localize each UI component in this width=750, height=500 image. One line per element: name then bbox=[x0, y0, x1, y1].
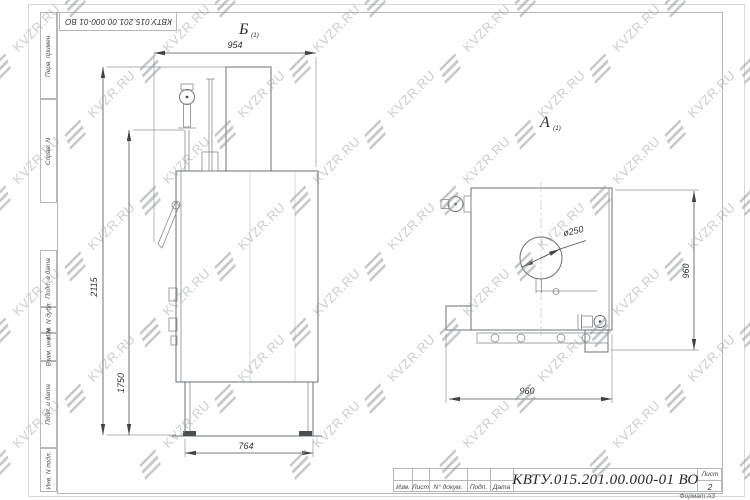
strip-label: Справ. N bbox=[45, 137, 52, 164]
strip-label: Инв. N подл. bbox=[45, 451, 52, 489]
watermark-logo-icon bbox=[0, 316, 11, 348]
tb-col-izm: Изм. bbox=[394, 481, 412, 493]
format-note: Формат А3 bbox=[560, 493, 715, 500]
watermark-logo-icon bbox=[0, 52, 11, 84]
tb-col-list: Лист bbox=[412, 481, 429, 493]
tb-col-dokum: N° докум. bbox=[429, 481, 467, 493]
top-designation-text: КВТУ.015.201.00.000-01 ВО bbox=[65, 17, 172, 26]
strip-label: Перв. примен. bbox=[45, 34, 52, 77]
inner-frame bbox=[57, 12, 723, 494]
strip-label: Подп. и дата bbox=[45, 384, 52, 425]
strip-cell-podp-data-1: Подп. и дата bbox=[40, 250, 57, 307]
strip-cell-podp-data-2: Подп. и дата bbox=[40, 361, 57, 448]
tb-col-podp: Подп. bbox=[467, 481, 490, 493]
strip-label: Подп. и дата bbox=[45, 258, 52, 299]
titleblock: Изм. Лист N° докум. Подп. Дата КВТУ.015.… bbox=[393, 468, 722, 492]
watermark-logo-icon bbox=[0, 448, 11, 480]
tb-col-data: Дата bbox=[490, 481, 513, 493]
strip-cell-sprav-n: Справ. N bbox=[40, 99, 57, 203]
sheet-label: Лист bbox=[697, 469, 723, 480]
top-designation-stamp: КВТУ.015.201.00.000-01 ВО bbox=[59, 12, 177, 31]
strip-cell-inv-podl: Инв. N подл. bbox=[40, 448, 57, 492]
sheet-number: 2 bbox=[697, 480, 723, 493]
strip-cell-perv-primen: Перв. примен. bbox=[40, 12, 57, 99]
strip-cell-vzam-inv: Взам. инв. N bbox=[40, 333, 57, 361]
drawing-designation: КВТУ.015.201.00.000-01 ВО bbox=[513, 469, 698, 491]
watermark-logo-icon bbox=[0, 184, 11, 216]
drawing-sheet: Перв. примен. Справ. N Подп. и дата Инв.… bbox=[0, 0, 750, 500]
